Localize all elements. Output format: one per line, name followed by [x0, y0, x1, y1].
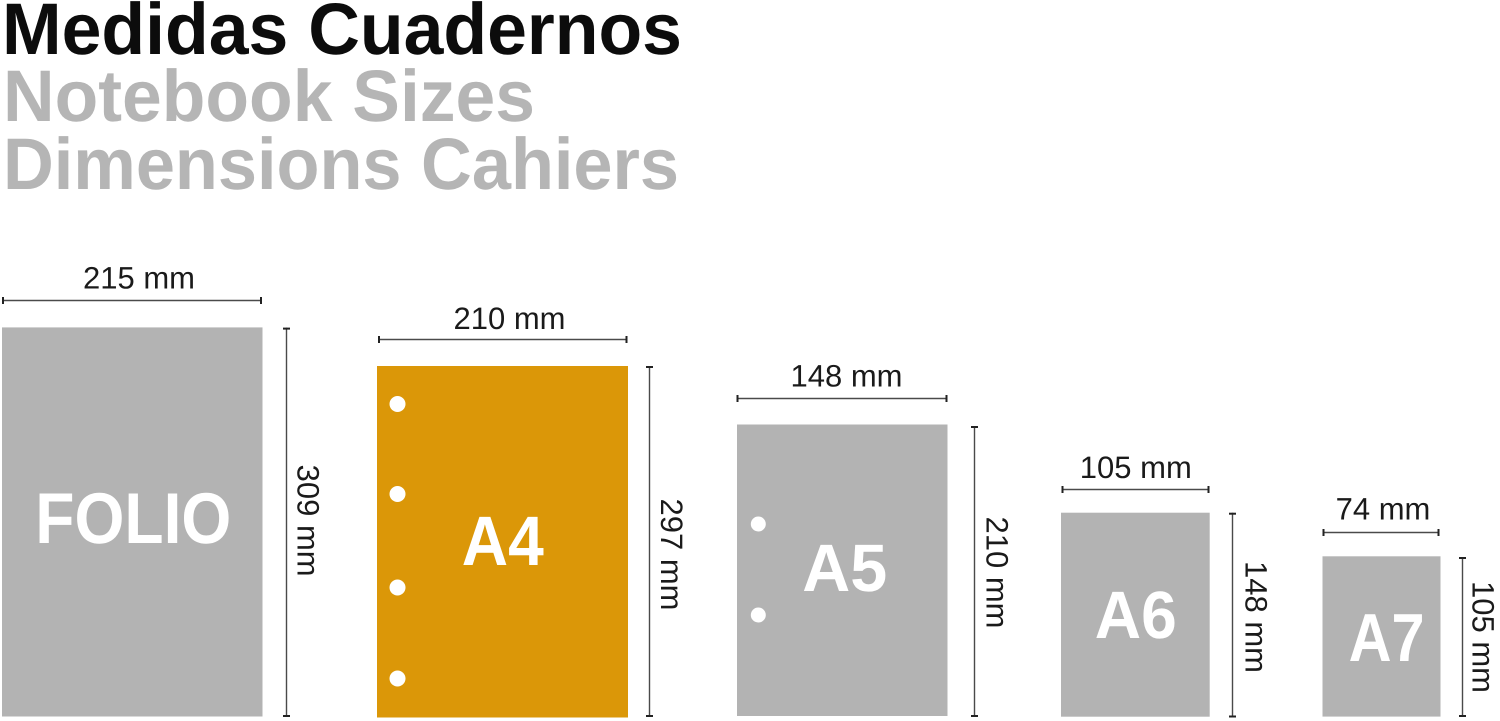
svg-text:297 mm: 297 mm — [654, 499, 689, 611]
svg-text:Dimensions Cahiers: Dimensions Cahiers — [3, 124, 679, 205]
svg-text:105 mm: 105 mm — [1080, 450, 1192, 485]
svg-text:A4: A4 — [462, 502, 544, 580]
svg-text:210 mm: 210 mm — [979, 517, 1014, 629]
svg-text:105 mm: 105 mm — [1466, 581, 1500, 693]
svg-text:309 mm: 309 mm — [291, 465, 326, 577]
svg-text:A5: A5 — [802, 531, 887, 606]
svg-text:FOLIO: FOLIO — [35, 479, 231, 559]
svg-text:148 mm: 148 mm — [1239, 561, 1274, 673]
svg-text:74 mm: 74 mm — [1336, 492, 1431, 527]
svg-text:A7: A7 — [1349, 600, 1425, 676]
svg-text:148 mm: 148 mm — [791, 359, 903, 394]
svg-text:A6: A6 — [1095, 578, 1177, 653]
svg-text:210 mm: 210 mm — [454, 301, 566, 336]
svg-text:215 mm: 215 mm — [83, 261, 195, 296]
